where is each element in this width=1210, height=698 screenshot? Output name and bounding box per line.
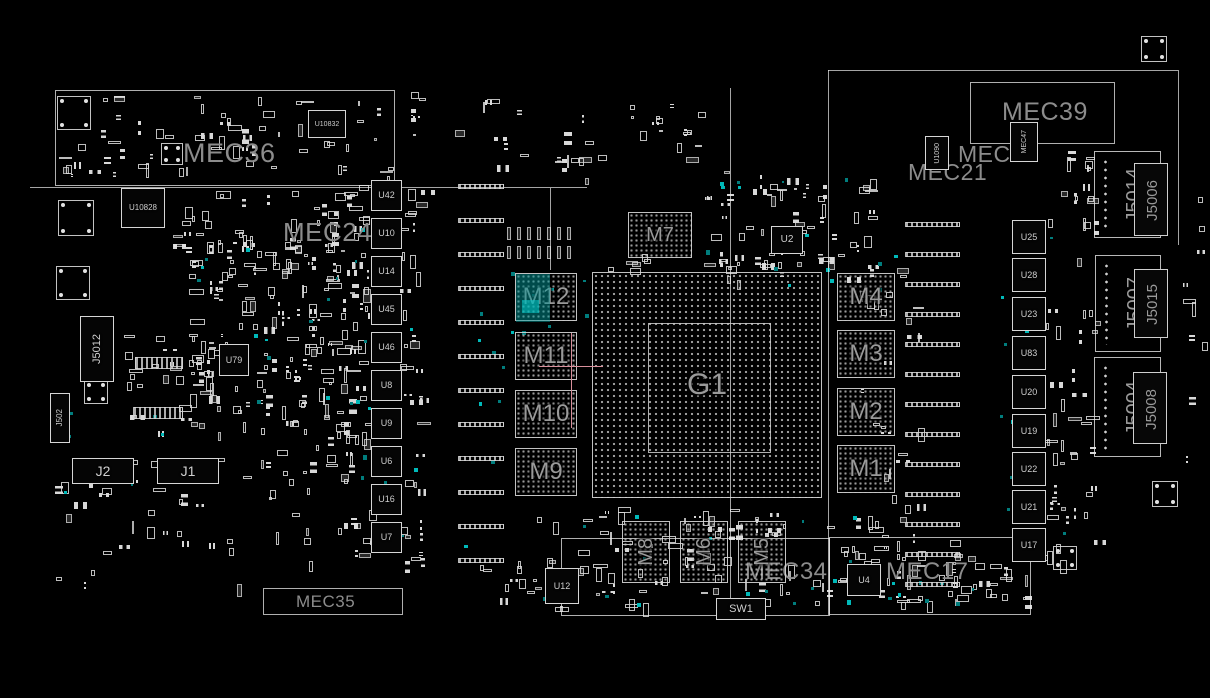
component-outline (350, 349, 356, 354)
mount-dot (1155, 484, 1159, 488)
test-point (355, 260, 358, 263)
mount-dot (83, 269, 87, 273)
test-point (853, 516, 856, 519)
component-M1[interactable]: M1 (837, 445, 895, 493)
component-outline (652, 122, 659, 125)
component-U1090[interactable]: U1090 (925, 136, 949, 170)
mount-dot (87, 229, 91, 233)
component-M9[interactable]: M9 (515, 448, 577, 496)
component-outline (1047, 439, 1050, 446)
bar-array-right (905, 312, 960, 317)
component-G1[interactable]: G1 (592, 272, 822, 498)
bar-array-left (458, 388, 504, 393)
label-text: U12 (554, 582, 571, 591)
component-outline (562, 159, 567, 172)
component-outline (1053, 453, 1058, 467)
mount-dot (1144, 39, 1148, 43)
test-point (161, 433, 164, 436)
component-U2[interactable]: U2 (771, 226, 803, 254)
component-outline (297, 309, 300, 315)
component-outline (243, 422, 246, 433)
component-outline (186, 247, 192, 253)
component-M4[interactable]: M4 (837, 273, 895, 321)
connector-pins (1103, 158, 1108, 231)
component-outline (1197, 250, 1205, 255)
component-J502[interactable]: J502 (50, 393, 70, 443)
component-outline (239, 323, 243, 330)
component-outline (497, 165, 510, 172)
label-text: M9 (529, 460, 562, 484)
component-outline (312, 327, 316, 337)
component-outline (292, 191, 299, 197)
component-outline (494, 137, 508, 140)
component-outline (694, 516, 701, 518)
component-outline (778, 262, 782, 269)
component-M11[interactable]: M11 (515, 332, 577, 380)
component-U28[interactable]: U28 (1012, 258, 1046, 292)
component-outline (1091, 486, 1097, 491)
component-MEC47[interactable]: MEC47 (1010, 122, 1038, 162)
component-U79[interactable]: U79 (219, 344, 249, 376)
test-point (635, 515, 639, 519)
component-outline (803, 193, 806, 198)
mounting-hole (1053, 546, 1077, 570)
component-outline (208, 349, 215, 360)
component-outline (600, 531, 609, 535)
component-outline (257, 372, 267, 374)
component-outline (764, 260, 768, 271)
label-text: U10828 (129, 204, 157, 212)
component-M10[interactable]: M10 (515, 390, 577, 438)
component-outline (324, 415, 329, 421)
label-text: U10832 (315, 121, 340, 128)
component-outline (295, 370, 297, 380)
component-outline (411, 92, 419, 98)
test-point (257, 400, 260, 403)
label-text: U19 (1021, 427, 1038, 436)
component-outline (505, 584, 509, 593)
component-U17[interactable]: U17 (1012, 528, 1046, 562)
mount-dot (101, 383, 105, 387)
component-outline (1051, 503, 1059, 506)
component-outline (290, 357, 292, 361)
test-point (1004, 343, 1007, 346)
label-text: J5012 (92, 334, 103, 364)
component-outline (267, 195, 270, 205)
component-outline (746, 226, 755, 229)
component-outline (173, 235, 183, 238)
component-outline (1046, 323, 1049, 330)
component-outline (266, 462, 271, 468)
component-J5008[interactable]: J5008 (1133, 372, 1167, 444)
test-point (894, 255, 898, 259)
component-outline (579, 158, 584, 166)
component-outline (698, 112, 706, 118)
component-outline (483, 569, 492, 573)
component-U6[interactable]: U6 (371, 446, 402, 477)
component-outline (686, 157, 699, 163)
component-U14[interactable]: U14 (371, 256, 402, 287)
component-outline (55, 486, 63, 494)
component-outline (209, 543, 215, 549)
bar-array-right (905, 282, 960, 287)
component-outline (659, 130, 664, 132)
component-outline (361, 253, 366, 258)
component-outline (190, 319, 205, 325)
component-U19[interactable]: U19 (1012, 414, 1046, 448)
component-outline (304, 429, 307, 435)
component-outline (868, 516, 873, 531)
pad-footprint (557, 227, 561, 240)
component-outline (793, 212, 800, 223)
component-outline (343, 299, 346, 312)
test-point (201, 266, 205, 270)
mount-dot (61, 203, 65, 207)
component-U42[interactable]: U42 (371, 180, 402, 211)
component-outline (1094, 540, 1107, 545)
component-outline (338, 528, 342, 535)
component-J5015[interactable]: J5015 (1134, 269, 1168, 338)
component-outline (66, 514, 72, 522)
label-text: U1090 (934, 143, 941, 164)
label-text: U25 (1021, 233, 1038, 242)
component-outline (228, 275, 233, 278)
label-text: MEC35 (296, 592, 355, 611)
component-M7[interactable]: M7 (628, 212, 692, 258)
component-outline (1083, 310, 1086, 319)
bar-array-right (905, 462, 960, 467)
component-outline (218, 432, 220, 441)
mount-dot (84, 123, 88, 127)
test-point (464, 545, 468, 549)
label-text: J2 (96, 464, 111, 478)
component-outline (264, 365, 267, 370)
component-outline (707, 196, 713, 200)
label-text: U8 (381, 381, 393, 390)
component-outline (235, 386, 239, 392)
label-text: J1 (181, 464, 196, 478)
bar-array-left (458, 286, 504, 291)
mount-dot (59, 269, 63, 273)
mount-dot (101, 397, 105, 401)
component-U10[interactable]: U10 (371, 218, 402, 249)
component-U8[interactable]: U8 (371, 370, 402, 401)
component-outline (913, 307, 924, 309)
test-point (350, 402, 353, 405)
test-point (511, 331, 514, 334)
bar-array-right (905, 252, 960, 257)
component-outline (216, 191, 231, 198)
test-point (802, 520, 805, 523)
component-outline (179, 499, 183, 505)
component-outline (359, 553, 371, 557)
component-outline (310, 462, 317, 473)
component-outline (753, 189, 767, 195)
component-outline (222, 272, 228, 281)
component-outline (238, 410, 242, 413)
component-outline (898, 453, 907, 456)
component-outline (1083, 184, 1091, 191)
mount-dot (1056, 563, 1060, 567)
component-outline (184, 232, 191, 236)
component-outline (1202, 342, 1208, 351)
label-text: U83 (1021, 349, 1038, 358)
component-outline (196, 357, 202, 365)
component-outline (230, 260, 234, 264)
test-point (583, 525, 586, 528)
connector-pins (1104, 262, 1109, 345)
component-M8[interactable]: M8 (622, 521, 670, 583)
test-point (1050, 237, 1053, 240)
component-outline (1048, 309, 1058, 314)
component-outline (328, 283, 341, 288)
component-outline (1072, 369, 1075, 382)
component-outline (905, 505, 911, 514)
component-outline (347, 435, 357, 438)
component-outline (218, 458, 225, 462)
component-outline (309, 304, 317, 318)
component-outline (761, 229, 764, 236)
component-U16[interactable]: U16 (371, 484, 402, 515)
component-outline (242, 312, 255, 316)
mount-dot (87, 383, 91, 387)
component-outline (227, 539, 234, 544)
component-outline (365, 306, 369, 312)
component-outline (311, 349, 317, 357)
component-outline (305, 344, 310, 354)
component-outline (720, 259, 727, 262)
component-U7[interactable]: U7 (371, 522, 402, 553)
component-outline (1183, 283, 1188, 288)
bar-array-left (458, 558, 504, 563)
component-outline (1081, 422, 1092, 425)
test-point (205, 258, 208, 261)
component-U23[interactable]: U23 (1012, 297, 1046, 331)
component-outline (347, 370, 361, 372)
bar-array-left (458, 422, 504, 427)
component-U45[interactable]: U45 (371, 294, 402, 325)
component-outline (253, 324, 258, 330)
component-U9[interactable]: U9 (371, 408, 402, 439)
mec24-label: MEC24 (283, 219, 439, 249)
component-outline (1061, 191, 1069, 198)
component-outline (191, 372, 194, 375)
label-text: M7 (646, 225, 674, 245)
component-outline (199, 372, 204, 383)
test-point (414, 468, 418, 472)
component-outline (283, 471, 287, 476)
component-outline (353, 322, 358, 332)
component-outline (670, 104, 673, 108)
component-outline (869, 210, 875, 215)
mount-dot (164, 146, 168, 150)
pad-footprint (547, 246, 551, 259)
component-outline (631, 116, 634, 119)
component-J5012[interactable]: J5012 (80, 316, 114, 382)
component-outline (644, 259, 650, 264)
component-outline (304, 538, 311, 545)
component-outline (1084, 512, 1088, 519)
component-outline (347, 196, 352, 207)
label-text: U21 (1021, 503, 1038, 512)
component-outline (229, 548, 234, 557)
component-outline (360, 303, 363, 310)
bga-inner-outline (648, 323, 771, 453)
component-outline (360, 396, 366, 401)
component-outline (487, 99, 501, 105)
component-outline (416, 454, 425, 456)
mount-dot (87, 397, 91, 401)
bar-array-right (905, 342, 960, 347)
component-U22[interactable]: U22 (1012, 452, 1046, 486)
component-outline (408, 189, 415, 201)
label-text: U28 (1021, 271, 1038, 280)
component-outline (722, 216, 727, 219)
component-outline (320, 313, 332, 316)
component-outline (209, 347, 216, 350)
component-outline (684, 129, 687, 136)
component-U4[interactable]: U4 (847, 564, 881, 596)
mounting-hole (84, 380, 108, 404)
component-outline (210, 281, 212, 294)
component-outline (329, 341, 343, 345)
bar-array-left (458, 218, 504, 223)
pad-footprint (537, 227, 541, 240)
mount-dot (1155, 500, 1159, 504)
component-outline (630, 105, 636, 110)
component-M6[interactable]: M6 (680, 521, 728, 583)
test-point (246, 248, 250, 252)
component-outline (217, 406, 221, 412)
component-outline (127, 382, 132, 391)
component-outline (263, 389, 266, 392)
test-point (502, 366, 505, 369)
component-outline (704, 263, 717, 266)
label-text: MEC36 (183, 138, 276, 168)
component-outline (316, 445, 319, 451)
component-outline (242, 301, 247, 312)
component-outline (356, 386, 366, 391)
component-outline (832, 234, 838, 240)
component-U83[interactable]: U83 (1012, 336, 1046, 370)
label-text: M3 (849, 342, 882, 366)
component-outline (854, 212, 860, 224)
component-outline (735, 255, 744, 261)
component-outline (730, 509, 739, 512)
component-M2[interactable]: M2 (837, 388, 895, 436)
component-outline (1074, 193, 1077, 204)
component-outline (314, 207, 320, 209)
component-U20[interactable]: U20 (1012, 375, 1046, 409)
component-outline (403, 310, 407, 321)
connector-label: J5006 (1135, 164, 1169, 237)
component-outline (196, 233, 204, 236)
component-outline (307, 488, 309, 495)
test-point (548, 325, 551, 328)
component-outline (897, 268, 909, 274)
component-outline (1066, 516, 1069, 524)
label-text: M11 (524, 344, 569, 368)
component-U12[interactable]: U12 (545, 568, 579, 604)
component-outline (137, 384, 143, 387)
component-M12[interactable]: M12 (515, 273, 577, 321)
component-outline (335, 193, 345, 201)
component-SW1[interactable]: SW1 (716, 598, 766, 620)
component-outline (337, 411, 344, 414)
mount-dot (61, 229, 65, 233)
component-outline (1068, 417, 1082, 421)
component-U10832[interactable]: U10832 (308, 110, 346, 138)
component-outline (261, 460, 264, 469)
component-outline (797, 262, 802, 266)
test-point (361, 476, 365, 480)
component-outline (1070, 452, 1077, 455)
component-outline (56, 577, 63, 581)
component-outline (282, 406, 287, 420)
component-outline (417, 422, 431, 425)
mec35-box-label: MEC35 (296, 593, 398, 614)
test-point (1001, 296, 1004, 299)
component-M3[interactable]: M3 (837, 330, 895, 378)
component-outline (257, 251, 261, 258)
component-J5006[interactable]: J5006 (1134, 163, 1168, 236)
label-text: U17 (1021, 541, 1038, 550)
inductor-bar (133, 407, 183, 419)
bar-array-right (905, 492, 960, 497)
label-text: SW1 (729, 604, 753, 615)
mount-dot (1160, 39, 1164, 43)
component-outline (1054, 485, 1057, 494)
component-outline (404, 344, 408, 348)
component-U10828[interactable]: U10828 (121, 188, 165, 228)
mount-dot (1070, 563, 1074, 567)
component-outline (687, 130, 692, 135)
board-canvas[interactable]: MEC36MEC39MEC17MEC35MEC24MEC25MEC21MEC34… (0, 0, 1210, 698)
component-U25[interactable]: U25 (1012, 220, 1046, 254)
component-outline (346, 452, 352, 456)
component-outline (1077, 258, 1082, 267)
component-outline (130, 374, 135, 380)
test-point (363, 455, 367, 459)
component-J2[interactable]: J2 (72, 458, 134, 484)
component-J1[interactable]: J1 (157, 458, 219, 484)
mounting-hole (1141, 36, 1167, 62)
test-point (410, 328, 413, 331)
label-text: U45 (378, 305, 395, 314)
component-U21[interactable]: U21 (1012, 490, 1046, 524)
component-outline (322, 204, 326, 216)
test-point (737, 181, 740, 184)
component-outline (266, 406, 269, 416)
component-M5[interactable]: M5 (738, 521, 786, 583)
pad-footprint (527, 246, 531, 259)
component-outline (892, 495, 897, 505)
label-text: U10 (378, 229, 395, 238)
mounting-hole (161, 143, 183, 165)
component-U46[interactable]: U46 (371, 332, 402, 363)
component-outline (321, 369, 334, 375)
component-outline (405, 213, 416, 217)
component-outline (326, 250, 333, 254)
test-point (706, 250, 710, 254)
label-text: U7 (381, 533, 393, 542)
pad-footprint (517, 246, 521, 259)
component-outline (737, 262, 741, 266)
component-outline (304, 254, 308, 258)
component-outline (411, 112, 413, 116)
mount-dot (87, 203, 91, 207)
component-outline (119, 545, 131, 549)
